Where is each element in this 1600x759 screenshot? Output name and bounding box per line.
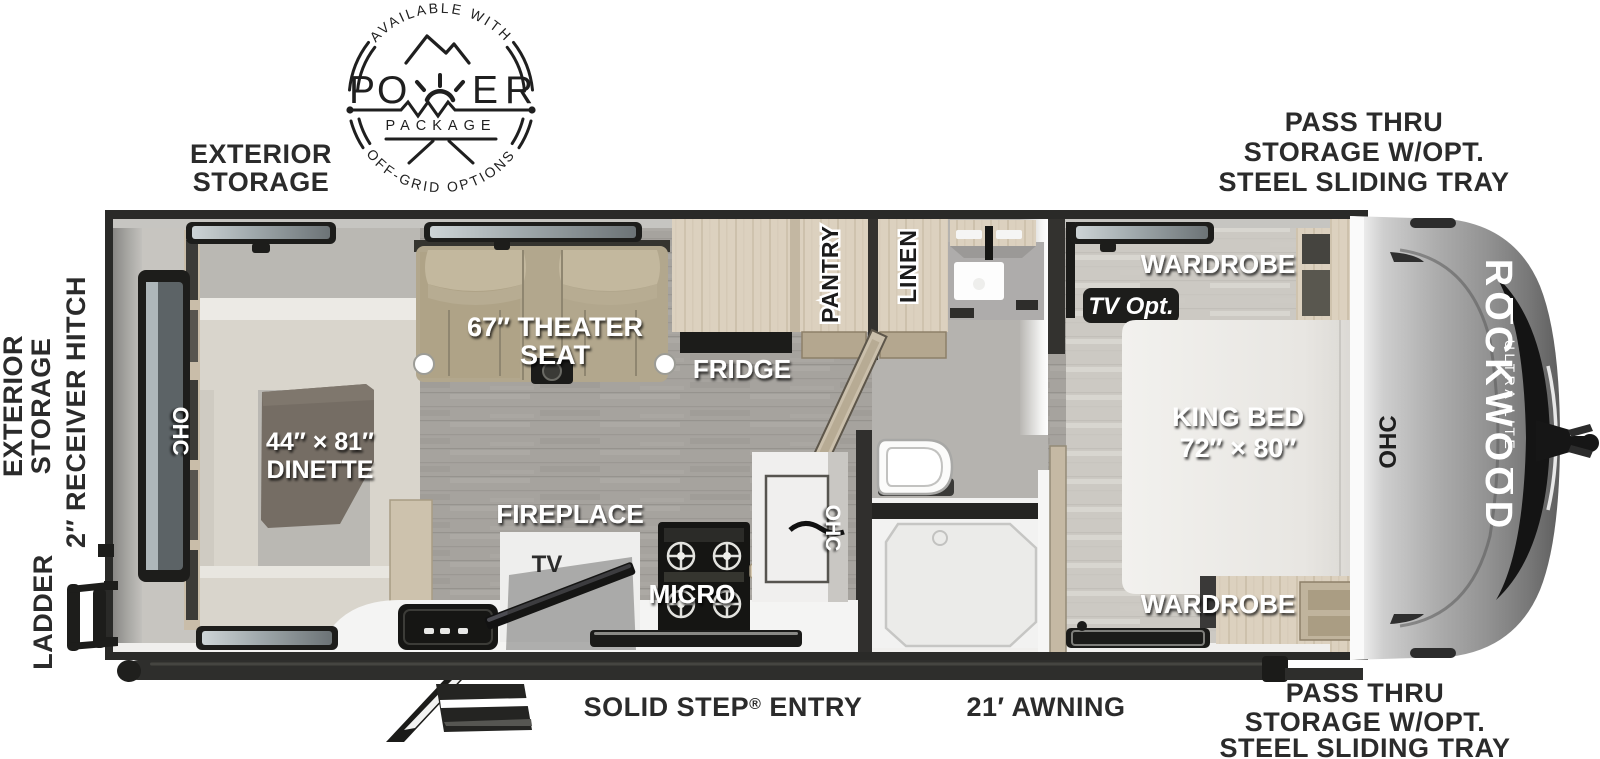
svg-text:STORAGE: STORAGE [193,167,330,197]
svg-text:ER: ER [472,69,540,112]
svg-text:PASS THRU: PASS THRU [1285,107,1444,137]
svg-text:LINEN: LINEN [895,229,921,303]
svg-text:ULTRA LITE: ULTRA LITE [1502,340,1518,453]
svg-text:STEEL SLIDING TRAY: STEEL SLIDING TRAY [1219,733,1510,759]
svg-text:STEEL SLIDING TRAY: STEEL SLIDING TRAY [1218,167,1509,197]
svg-text:72″ × 80″: 72″ × 80″ [1180,433,1297,463]
svg-text:EXTERIOR: EXTERIOR [190,139,332,169]
svg-text:WARDROBE: WARDROBE [1141,249,1296,279]
svg-text:OHC: OHC [821,505,844,552]
svg-text:EXTERIOR: EXTERIOR [0,335,28,477]
svg-text:67″ THEATER: 67″ THEATER [467,312,643,342]
svg-text:OHC: OHC [1375,415,1402,468]
svg-text:STORAGE: STORAGE [26,338,56,475]
svg-text:21′ AWNING: 21′ AWNING [967,692,1126,722]
svg-text:44″ × 81″: 44″ × 81″ [266,428,374,456]
svg-text:FIREPLACE: FIREPLACE [496,499,643,529]
svg-text:STORAGE W/OPT.: STORAGE W/OPT. [1244,137,1485,167]
svg-text:TV Opt.: TV Opt. [1088,293,1173,320]
svg-text:WARDROBE: WARDROBE [1141,589,1296,619]
svg-text:LADDER: LADDER [28,554,58,670]
svg-text:PACKAGE: PACKAGE [385,118,496,134]
svg-text:FRIDGE: FRIDGE [693,354,791,384]
svg-text:PANTRY: PANTRY [817,225,843,323]
svg-text:PASS THRU: PASS THRU [1286,678,1445,708]
svg-text:KING BED: KING BED [1172,402,1304,432]
svg-text:DINETTE: DINETTE [267,456,374,484]
svg-text:2″ RECEIVER HITCH: 2″ RECEIVER HITCH [61,276,91,548]
svg-text:MICRO: MICRO [649,579,736,609]
svg-text:SOLID STEP® ENTRY: SOLID STEP® ENTRY [584,692,863,722]
svg-text:OHC: OHC [168,407,193,456]
svg-text:PO: PO [349,69,409,112]
svg-text:SEAT: SEAT [520,340,591,370]
